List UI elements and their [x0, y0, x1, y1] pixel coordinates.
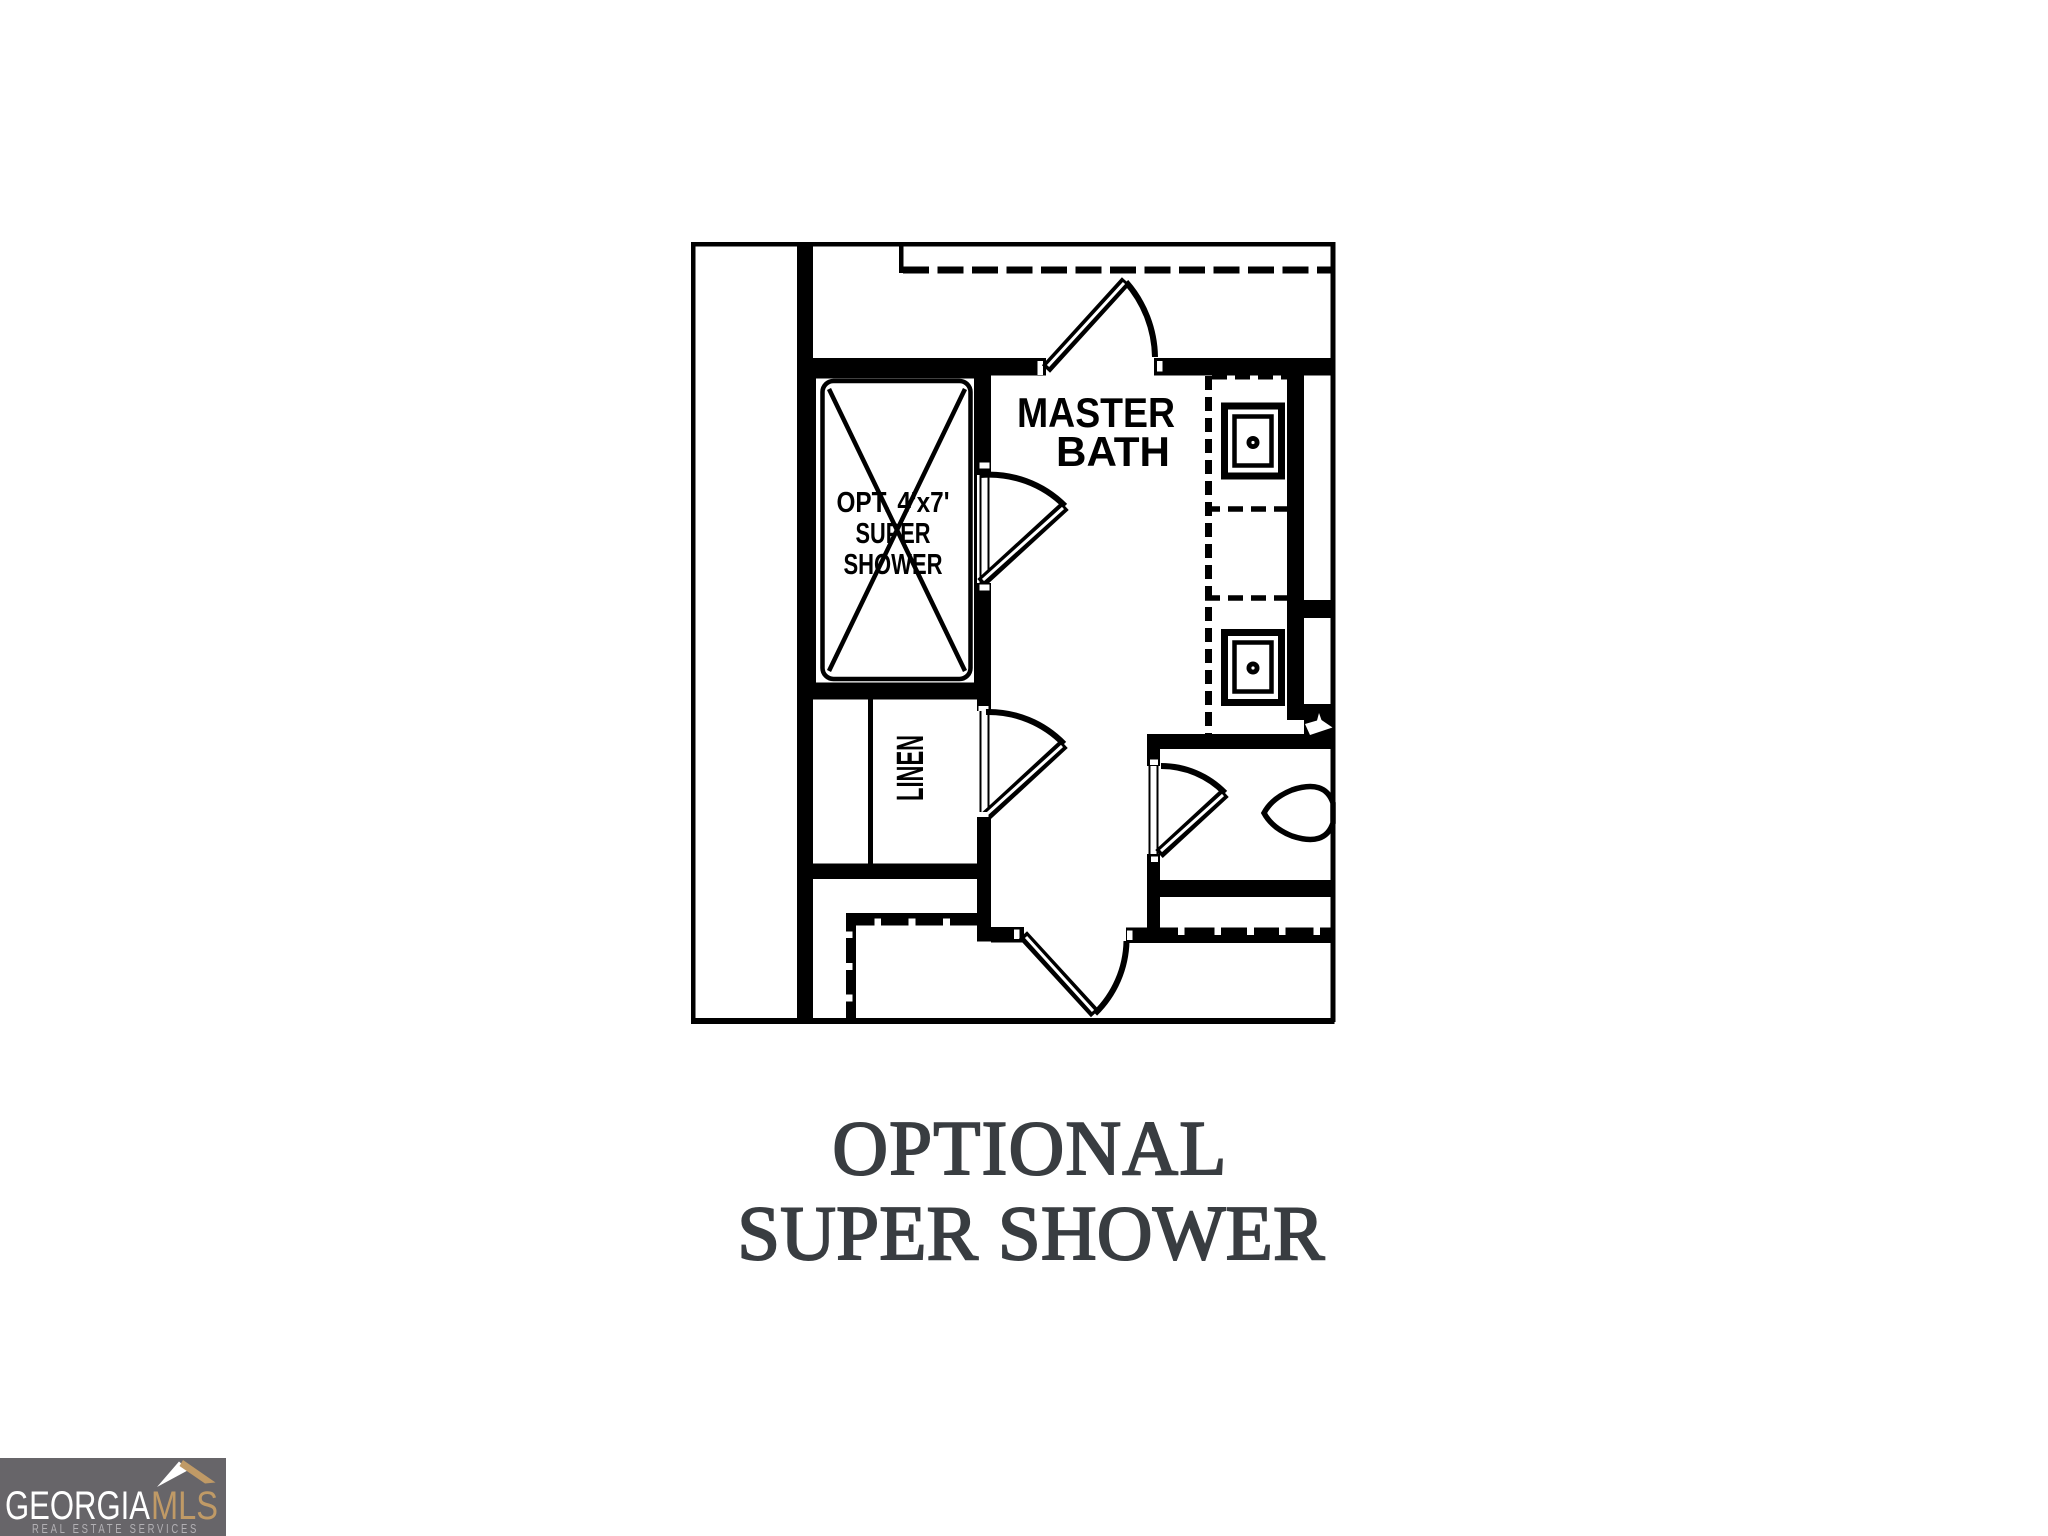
svg-text:OPTIONAL: OPTIONAL	[832, 1105, 1227, 1191]
svg-text:BATH: BATH	[1056, 428, 1170, 475]
svg-text:OPT. 4'x7': OPT. 4'x7'	[837, 487, 950, 519]
svg-text:LINEN: LINEN	[890, 735, 932, 801]
svg-text:SUPER: SUPER	[856, 518, 931, 550]
svg-text:SUPER SHOWER: SUPER SHOWER	[737, 1190, 1325, 1276]
svg-text:REAL ESTATE SERVICES: REAL ESTATE SERVICES	[32, 1522, 199, 1536]
svg-text:SHOWER: SHOWER	[844, 549, 943, 581]
